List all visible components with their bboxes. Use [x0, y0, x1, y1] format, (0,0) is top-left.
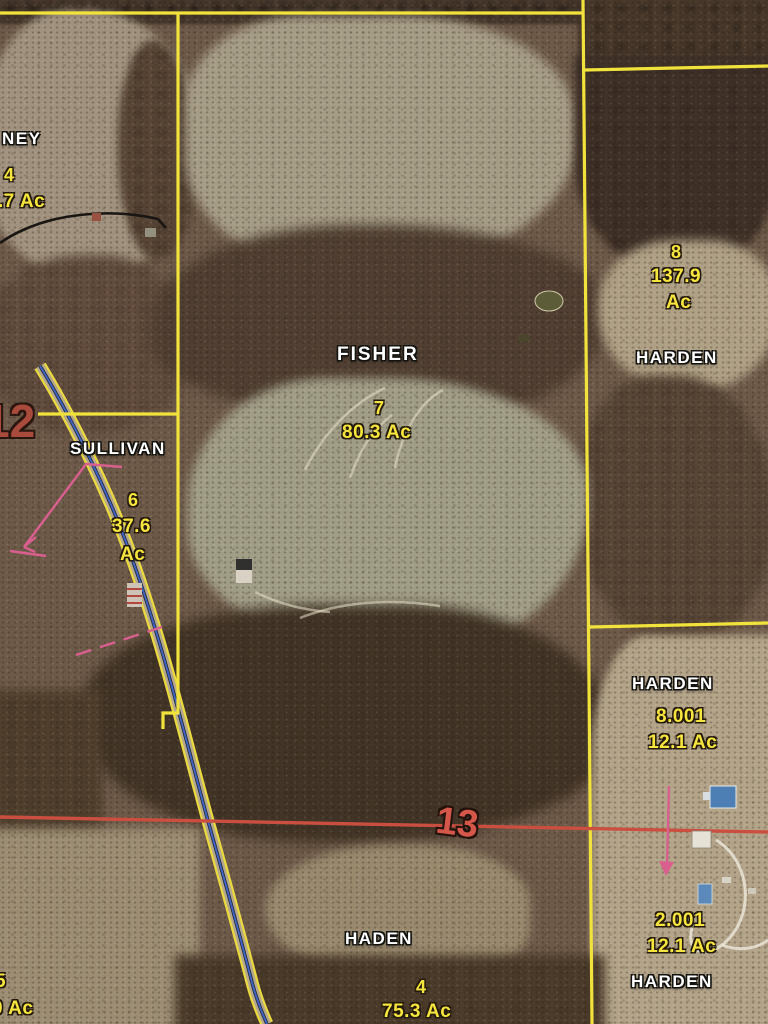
parcel-number-label: 5	[0, 972, 6, 991]
small-structure	[722, 877, 731, 883]
acreage-label: 12.1 Ac	[648, 733, 717, 752]
parcel-number-label: 8.001	[656, 707, 706, 726]
acreage-value-label: 137.9	[651, 267, 701, 286]
boundary-harden8001-north	[590, 623, 768, 627]
parcel-owner-label: HARDEN	[636, 349, 718, 366]
parcel-owner-label: HADEN	[345, 930, 413, 947]
highway-road	[40, 366, 267, 1024]
acreage-label: 75.3 Ac	[382, 1002, 451, 1021]
parcel-owner-label: SULLIVAN	[70, 440, 166, 457]
parcel-owner-label: HARDEN	[631, 973, 713, 990]
boundary-harden8-north	[585, 66, 768, 70]
plat-map: NEY 4 .7 Ac 12 SULLIVAN 6 37.6 Ac FISHER…	[0, 0, 768, 1024]
buildings	[92, 213, 756, 904]
parcel-number-label: 6	[128, 491, 139, 509]
parcel-number-label: 7	[374, 399, 385, 417]
small-structure	[748, 888, 756, 894]
driveway-line	[0, 213, 166, 243]
pink-arrowhead	[659, 861, 674, 876]
parcel-number-label: 4	[416, 978, 427, 996]
acreage-label: .7 Ac	[0, 192, 45, 211]
pond	[535, 291, 563, 311]
pink-arrow-harden	[667, 786, 669, 866]
barn-body	[236, 570, 252, 583]
acreage-value-label: 37.6	[112, 517, 151, 536]
barn-roof	[236, 559, 252, 570]
blue-roof-shed	[698, 884, 712, 904]
small-structure	[703, 792, 710, 800]
parcel-number-label: 2.001	[655, 911, 705, 930]
pink-dash	[10, 551, 46, 556]
section-number-label: 12	[0, 398, 35, 444]
parcel-owner-label: HARDEN	[632, 675, 714, 692]
section-line-13	[0, 817, 768, 832]
small-structure	[92, 213, 101, 221]
section-number-label: 13	[434, 802, 481, 845]
boundary-right-vertical	[583, 0, 592, 1024]
pink-annotations	[10, 464, 669, 866]
parcel-owner-label: FISHER	[337, 345, 419, 364]
pond-small	[518, 334, 530, 342]
parcel-owner-label: NEY	[2, 130, 41, 147]
parcel-number-label: 8	[671, 243, 682, 261]
boundary-fisher-west	[163, 13, 178, 729]
small-structure	[145, 228, 156, 237]
acreage-unit-label: Ac	[666, 293, 691, 312]
acreage-label: 0 Ac	[0, 999, 33, 1018]
white-building	[692, 831, 711, 848]
pink-dash-road	[76, 627, 162, 655]
acreage-label: 80.3 Ac	[342, 423, 411, 442]
acreage-unit-label: Ac	[120, 545, 145, 564]
blue-roof-house	[710, 786, 736, 808]
acreage-label: 12.1 Ac	[647, 937, 716, 956]
map-overlay	[0, 0, 768, 1024]
parcel-number-label: 4	[4, 166, 15, 184]
